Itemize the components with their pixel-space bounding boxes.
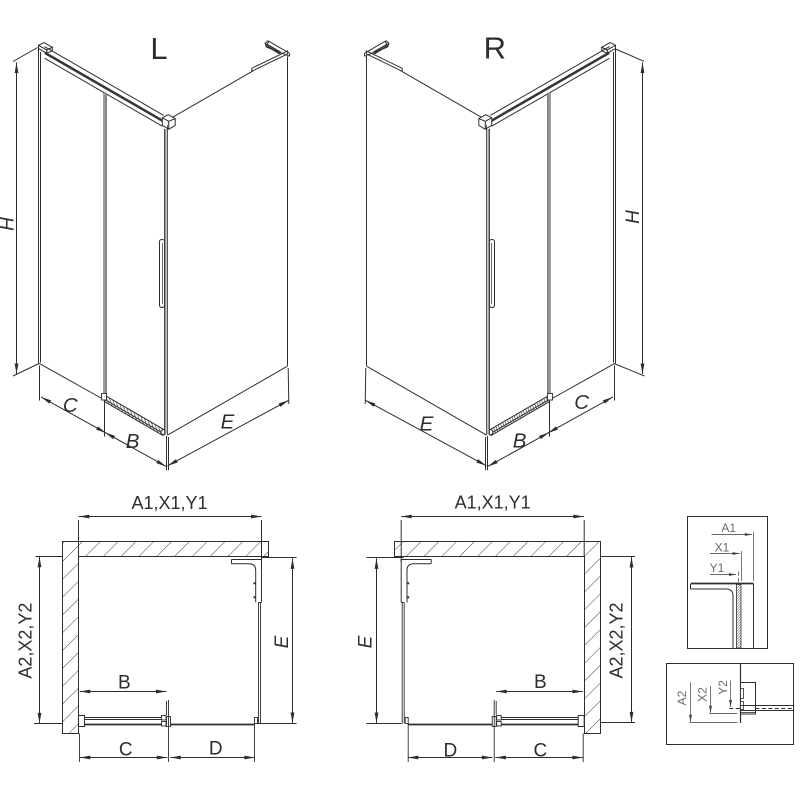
svg-text:X1: X1: [715, 540, 730, 554]
svg-text:A1,X1,Y1: A1,X1,Y1: [131, 493, 207, 513]
svg-text:D: D: [444, 741, 458, 762]
svg-text:E: E: [272, 635, 293, 648]
svg-text:E: E: [420, 413, 434, 436]
svg-text:C: C: [119, 739, 133, 760]
svg-text:A2: A2: [675, 690, 689, 705]
svg-text:A1,X1,Y1: A1,X1,Y1: [455, 493, 531, 513]
svg-text:B: B: [126, 430, 140, 453]
svg-text:B: B: [118, 673, 131, 694]
svg-text:E: E: [356, 635, 377, 648]
svg-text:R: R: [484, 31, 506, 66]
svg-text:C: C: [63, 394, 78, 417]
svg-text:D: D: [209, 739, 223, 760]
svg-text:H: H: [623, 210, 644, 224]
svg-text:C: C: [534, 741, 548, 762]
svg-text:A2,X2,Y2: A2,X2,Y2: [16, 603, 36, 679]
svg-text:A1: A1: [721, 521, 736, 535]
svg-text:E: E: [221, 411, 235, 434]
svg-text:A2,X2,Y2: A2,X2,Y2: [607, 602, 627, 678]
svg-text:C: C: [574, 391, 589, 414]
svg-text:H: H: [0, 217, 19, 231]
svg-text:L: L: [150, 31, 167, 66]
svg-text:Y2: Y2: [716, 680, 730, 695]
svg-text:Y1: Y1: [710, 561, 725, 575]
svg-text:X2: X2: [696, 687, 710, 702]
svg-text:B: B: [534, 672, 547, 693]
svg-text:B: B: [513, 430, 527, 453]
